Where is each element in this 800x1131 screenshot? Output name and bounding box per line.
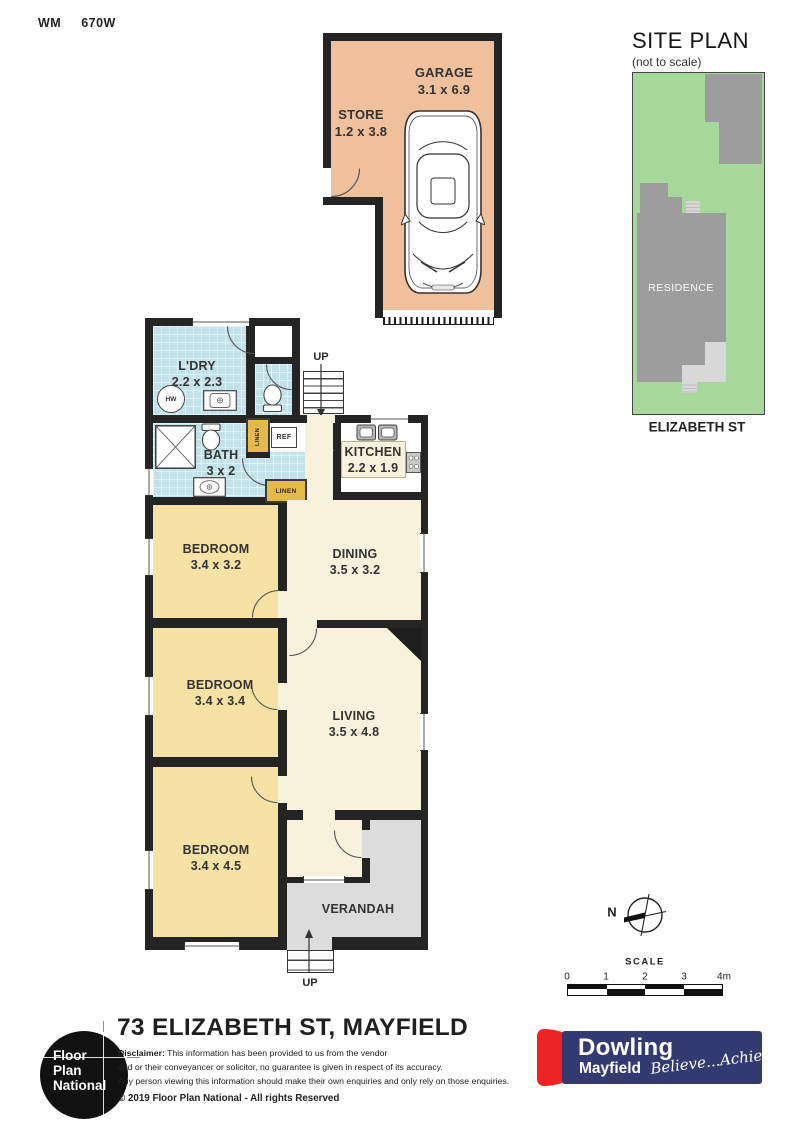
window-bedroom1-left xyxy=(145,538,153,576)
room-label-bath: BATH 3 x 2 xyxy=(204,447,239,480)
window-dining-right xyxy=(420,533,428,573)
kitchen-sink xyxy=(356,424,398,441)
room-label-kitchen: KITCHEN 2.2 x 1.9 xyxy=(345,444,402,477)
disclaimer-line-2: and or their conveyancer or solicitor, n… xyxy=(118,1061,509,1075)
wc-toilet xyxy=(261,384,284,413)
address-title: 73 ELIZABETH ST, MAYFIELD xyxy=(117,1014,468,1042)
room-label-dining: DINING 3.5 x 3.2 xyxy=(330,546,380,579)
car-illustration xyxy=(401,106,485,298)
laundry-name: L'DRY xyxy=(178,358,216,374)
site-residence-bump2 xyxy=(668,197,682,214)
bedroom2-door-gap xyxy=(278,683,287,710)
bedroom3-dims: 3.4 x 4.5 xyxy=(191,858,241,874)
verandah-door-arc xyxy=(334,830,362,858)
fpn-line-3: National xyxy=(53,1078,106,1093)
verandah-name: VERANDAH xyxy=(322,901,394,917)
wm-label: WM 670W xyxy=(38,16,116,30)
bedroom2-name: BEDROOM xyxy=(187,677,254,693)
scale-tick-1: 1 xyxy=(603,972,609,983)
fpn-logo-text: Floor Plan National xyxy=(53,1048,106,1093)
site-steps-bottom xyxy=(682,382,697,393)
room-label-store: STORE 1.2 x 3.8 xyxy=(335,107,387,141)
site-residence-bump1 xyxy=(640,183,668,214)
room-label-living: LIVING 3.5 x 4.8 xyxy=(329,708,379,741)
fireplace xyxy=(387,628,421,661)
living-dims: 3.5 x 4.8 xyxy=(329,724,379,740)
store-door-gap xyxy=(323,168,331,197)
shower xyxy=(155,425,196,469)
wm-value: 670W xyxy=(81,16,116,30)
copyright-line: © 2019 Floor Plan National - All rights … xyxy=(118,1091,509,1107)
room-label-verandah: VERANDAH xyxy=(322,901,394,917)
dining-living-gap xyxy=(287,620,317,628)
site-residence-label: RESIDENCE xyxy=(648,282,714,294)
site-verandah-2 xyxy=(682,365,726,382)
hw-text: HW xyxy=(166,396,177,403)
site-plan-subtitle: (not to scale) xyxy=(632,55,701,69)
fpn-line-2: Plan xyxy=(53,1063,106,1078)
scale-tick-2: 2 xyxy=(642,972,648,983)
bedroom3-door-arc xyxy=(251,776,278,803)
verandah-door-gap xyxy=(362,830,370,858)
bedroom2-door-arc xyxy=(251,683,278,710)
site-garage-lower xyxy=(719,122,762,164)
window-bedroom3-left xyxy=(145,850,153,890)
garage-dims: 3.1 x 6.9 xyxy=(418,82,470,99)
store-door-arc xyxy=(331,168,360,197)
up-label-bottom: UP xyxy=(302,977,317,989)
bedroom3-name: BEDROOM xyxy=(183,842,250,858)
scale-tick-3: 3 xyxy=(681,972,687,983)
hot-water-unit: HW xyxy=(157,385,185,413)
garage-name: GARAGE xyxy=(415,65,473,82)
stairs-arrow-down xyxy=(316,364,326,418)
window-laundry-top xyxy=(192,318,250,326)
dining-name: DINING xyxy=(333,546,378,562)
compass-icon xyxy=(623,893,667,937)
site-garage-upper xyxy=(705,74,762,122)
back-door-arc xyxy=(227,326,255,354)
entry-alcove xyxy=(255,326,292,357)
disclaimer-block: Disclaimer: This information has been pr… xyxy=(118,1047,509,1106)
scale-tick-0: 0 xyxy=(564,972,570,983)
bedroom3-door-gap xyxy=(278,776,287,803)
room-label-garage: GARAGE 3.1 x 6.9 xyxy=(415,65,473,99)
disclaimer-line-3: Any person viewing this information shou… xyxy=(118,1075,509,1089)
fpn-logo: Floor Plan National xyxy=(40,1031,128,1119)
site-street-label: ELIZABETH ST xyxy=(649,420,746,435)
bath-name: BATH xyxy=(204,447,239,463)
disclaimer-text-1: This information has been provided to us… xyxy=(167,1048,387,1058)
fridge-space: REF xyxy=(271,427,297,448)
laundry-tub xyxy=(203,390,237,411)
fpn-line-1: Floor xyxy=(53,1048,106,1063)
window-bedroom3-bottom xyxy=(184,942,240,950)
compass-north-label: N xyxy=(607,905,616,920)
dining-dims: 3.5 x 3.2 xyxy=(330,562,380,578)
ref-text: REF xyxy=(277,434,292,441)
bedroom1-door-arc xyxy=(252,590,280,618)
scale-bar xyxy=(567,984,723,996)
disclaimer-heading: Disclaimer: xyxy=(118,1048,165,1058)
stove-cooktop xyxy=(406,452,421,473)
living-rear-gap xyxy=(303,810,335,820)
linen-cupboard-vertical: LINEN xyxy=(246,418,270,456)
steps-arrow-up xyxy=(304,928,314,972)
kitchen-name: KITCHEN xyxy=(345,444,402,460)
window-bath-left xyxy=(145,468,153,496)
fpn-crosshair-tick-v xyxy=(103,1021,104,1032)
living-name: LIVING xyxy=(333,708,376,724)
window-kitchen-top xyxy=(370,415,409,423)
linen-v-text: LINEN xyxy=(255,428,261,446)
bedroom2-dims: 3.4 x 3.4 xyxy=(195,693,245,709)
floor-plan-page: WM 670W GARAGE 3.1 x 6.9 STORE 1.2 x 3.8… xyxy=(0,0,800,1131)
window-bedroom2-left xyxy=(145,676,153,716)
garage-roller-door xyxy=(383,317,494,325)
bath-basin xyxy=(193,477,226,497)
room-label-bedroom3: BEDROOM 3.4 x 4.5 xyxy=(183,842,250,875)
agency-logo: Dowling Mayfield Believe...Achieve xyxy=(562,1031,762,1084)
kitchen-dims: 2.2 x 1.9 xyxy=(348,460,398,476)
agency-suburb: Mayfield xyxy=(579,1060,641,1078)
store-dims: 1.2 x 3.8 xyxy=(335,124,387,141)
wm-text: WM xyxy=(38,16,61,30)
up-label-top: UP xyxy=(313,351,328,363)
scale-tick-4: 4m xyxy=(717,972,731,983)
site-plan-title: SITE PLAN xyxy=(632,28,749,54)
room-label-bedroom1: BEDROOM 3.4 x 3.2 xyxy=(183,541,250,574)
room-label-bedroom2: BEDROOM 3.4 x 3.4 xyxy=(187,677,254,710)
living-door-arc xyxy=(289,628,317,656)
store-name: STORE xyxy=(338,107,384,124)
disclaimer-line-1: Disclaimer: This information has been pr… xyxy=(118,1047,509,1061)
site-steps-top xyxy=(686,201,700,213)
bedroom1-name: BEDROOM xyxy=(183,541,250,557)
scale-title: SCALE xyxy=(625,957,665,968)
room-label-laundry: L'DRY 2.2 x 2.3 xyxy=(172,358,222,391)
bedroom1-dims: 3.4 x 3.2 xyxy=(191,557,241,573)
bath-dims: 3 x 2 xyxy=(207,463,236,479)
hall-top-door-gap xyxy=(307,415,335,423)
linen-h-text: LINEN xyxy=(276,488,297,495)
hallway-top xyxy=(305,423,333,508)
window-living-right xyxy=(420,713,428,751)
